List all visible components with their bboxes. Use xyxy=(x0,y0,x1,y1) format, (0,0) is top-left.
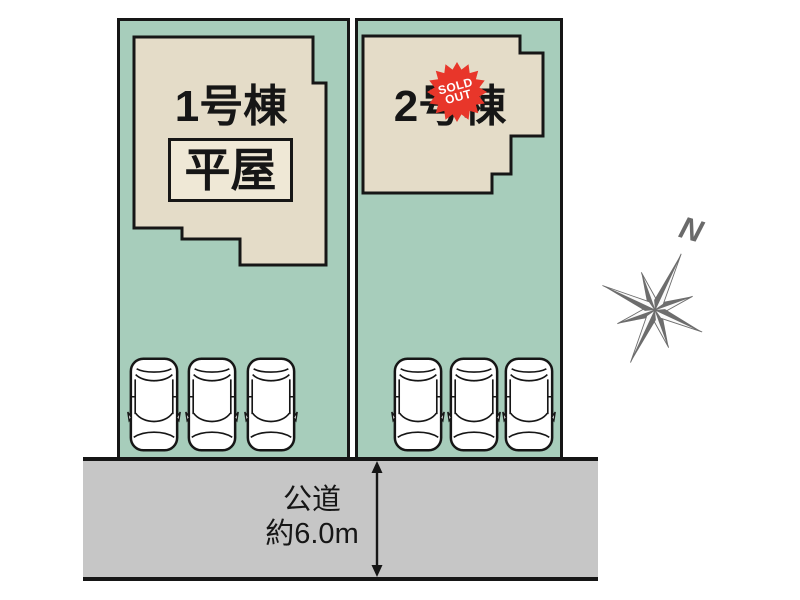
compass-rose-icon xyxy=(578,229,728,384)
car-icon xyxy=(245,359,297,451)
site-plan: 1号棟 平屋 2号棟 SOLD OUT 公道 約6.0m N xyxy=(0,0,800,600)
car-icon xyxy=(448,359,500,451)
car-icon xyxy=(186,359,238,451)
building-1-label: 1号棟 xyxy=(152,84,310,130)
car-icon xyxy=(503,359,555,451)
car-icon xyxy=(392,359,444,451)
building-1-type-label: 平屋 xyxy=(185,147,277,193)
road-label: 公道 約6.0m xyxy=(232,483,392,551)
sold-out-text-line2: OUT xyxy=(444,89,473,107)
building-1-type-box: 平屋 xyxy=(168,138,293,202)
road-label-line2: 約6.0m xyxy=(232,517,392,551)
road-label-line1: 公道 xyxy=(232,483,392,517)
sold-out-badge: SOLD OUT xyxy=(426,61,488,123)
car-icon xyxy=(128,359,180,451)
